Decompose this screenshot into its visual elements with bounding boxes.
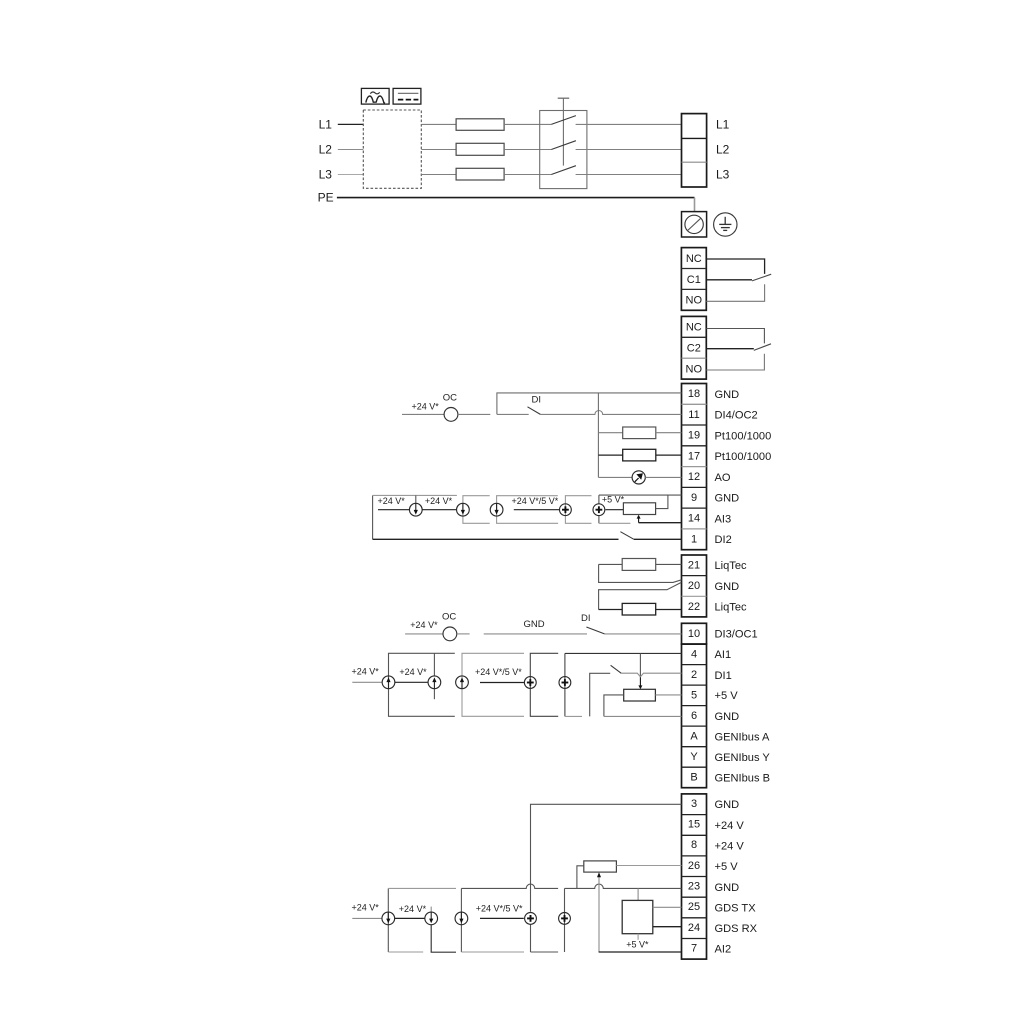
svg-text:3: 3 [691, 798, 697, 810]
svg-text:18: 18 [688, 388, 700, 400]
svg-text:23: 23 [688, 881, 700, 893]
svg-text:L2: L2 [319, 142, 333, 156]
svg-text:14: 14 [688, 513, 700, 525]
svg-text:GDS RX: GDS RX [715, 923, 758, 935]
svg-text:22: 22 [688, 601, 700, 613]
svg-text:+24 V*: +24 V* [352, 667, 380, 677]
svg-text:+24 V*: +24 V* [425, 496, 453, 506]
svg-text:GND: GND [715, 389, 740, 401]
svg-text:4: 4 [691, 649, 697, 661]
svg-text:C2: C2 [687, 343, 701, 355]
svg-text:5: 5 [691, 690, 697, 702]
svg-text:L1: L1 [716, 117, 730, 131]
svg-text:+24 V*: +24 V* [399, 667, 427, 677]
svg-text:GND: GND [715, 493, 740, 505]
svg-text:17: 17 [688, 450, 700, 462]
svg-text:AI2: AI2 [715, 944, 732, 956]
svg-text:L3: L3 [319, 167, 333, 181]
svg-text:21: 21 [688, 560, 700, 572]
svg-text:26: 26 [688, 860, 700, 872]
svg-text:B: B [690, 772, 697, 784]
svg-text:DI4/OC2: DI4/OC2 [715, 410, 758, 422]
svg-text:9: 9 [691, 492, 697, 504]
svg-text:AI3: AI3 [715, 513, 732, 525]
svg-text:GND: GND [715, 711, 740, 723]
svg-text:NC: NC [686, 322, 702, 334]
svg-text:25: 25 [688, 901, 700, 913]
svg-text:+24 V: +24 V [715, 820, 745, 832]
svg-text:DI: DI [532, 394, 542, 405]
svg-text:10: 10 [688, 628, 700, 640]
svg-text:Y: Y [690, 751, 698, 763]
svg-text:OC: OC [443, 392, 457, 403]
svg-text:+24 V*: +24 V* [410, 620, 438, 630]
svg-text:+24 V*/5 V*: +24 V*/5 V* [512, 496, 559, 506]
svg-text:GND: GND [715, 882, 740, 894]
svg-text:15: 15 [688, 819, 700, 831]
svg-text:24: 24 [688, 922, 700, 934]
svg-text:+5 V: +5 V [715, 861, 739, 873]
svg-text:12: 12 [688, 471, 700, 483]
svg-text:20: 20 [688, 580, 700, 592]
svg-text:Pt100/1000: Pt100/1000 [715, 430, 772, 442]
svg-text:6: 6 [691, 710, 697, 722]
svg-text:7: 7 [691, 942, 697, 954]
svg-text:+24 V*: +24 V* [399, 904, 427, 914]
svg-text:+24 V*/5 V*: +24 V*/5 V* [476, 904, 523, 914]
svg-text:GDS TX: GDS TX [715, 902, 757, 914]
svg-text:+24 V*: +24 V* [412, 401, 440, 411]
svg-text:GENIbus Y: GENIbus Y [715, 752, 771, 764]
svg-text:L1: L1 [319, 117, 333, 131]
svg-text:C1: C1 [687, 274, 701, 286]
svg-text:11: 11 [688, 409, 699, 421]
svg-text:GENIbus B: GENIbus B [715, 772, 771, 784]
svg-text:PE: PE [318, 191, 334, 205]
svg-text:GND: GND [715, 581, 740, 593]
svg-text:L2: L2 [716, 142, 730, 156]
svg-text:+24 V*: +24 V* [352, 903, 380, 913]
svg-text:A: A [690, 731, 698, 743]
svg-text:AO: AO [715, 472, 731, 484]
svg-text:NC: NC [686, 253, 702, 265]
svg-text:GENIbus A: GENIbus A [715, 731, 770, 743]
svg-text:Pt100/1000: Pt100/1000 [715, 451, 772, 463]
svg-text:2: 2 [691, 669, 697, 681]
svg-text:DI3/OC1: DI3/OC1 [715, 629, 758, 641]
svg-text:DI: DI [581, 613, 591, 624]
svg-text:L3: L3 [716, 167, 730, 181]
svg-text:DI1: DI1 [715, 670, 732, 682]
svg-text:NO: NO [686, 295, 703, 307]
svg-text:+5 V*: +5 V* [626, 939, 649, 949]
svg-text:DI2: DI2 [715, 534, 732, 546]
svg-text:GND: GND [524, 619, 545, 630]
svg-text:LiqTec: LiqTec [715, 602, 748, 614]
svg-text:AI1: AI1 [715, 649, 732, 661]
svg-text:OC: OC [442, 612, 456, 623]
svg-text:+5 V*: +5 V* [602, 495, 625, 505]
svg-text:+24 V*/5 V*: +24 V*/5 V* [475, 667, 522, 677]
svg-text:LiqTec: LiqTec [715, 560, 748, 572]
svg-text:+24 V*: +24 V* [378, 496, 406, 506]
svg-text:NO: NO [686, 364, 703, 376]
svg-text:19: 19 [688, 430, 700, 442]
svg-text:1: 1 [691, 534, 697, 546]
svg-text:GND: GND [715, 799, 740, 811]
svg-text:8: 8 [691, 839, 697, 851]
svg-text:+24 V: +24 V [715, 841, 745, 853]
svg-text:+5 V: +5 V [715, 690, 739, 702]
